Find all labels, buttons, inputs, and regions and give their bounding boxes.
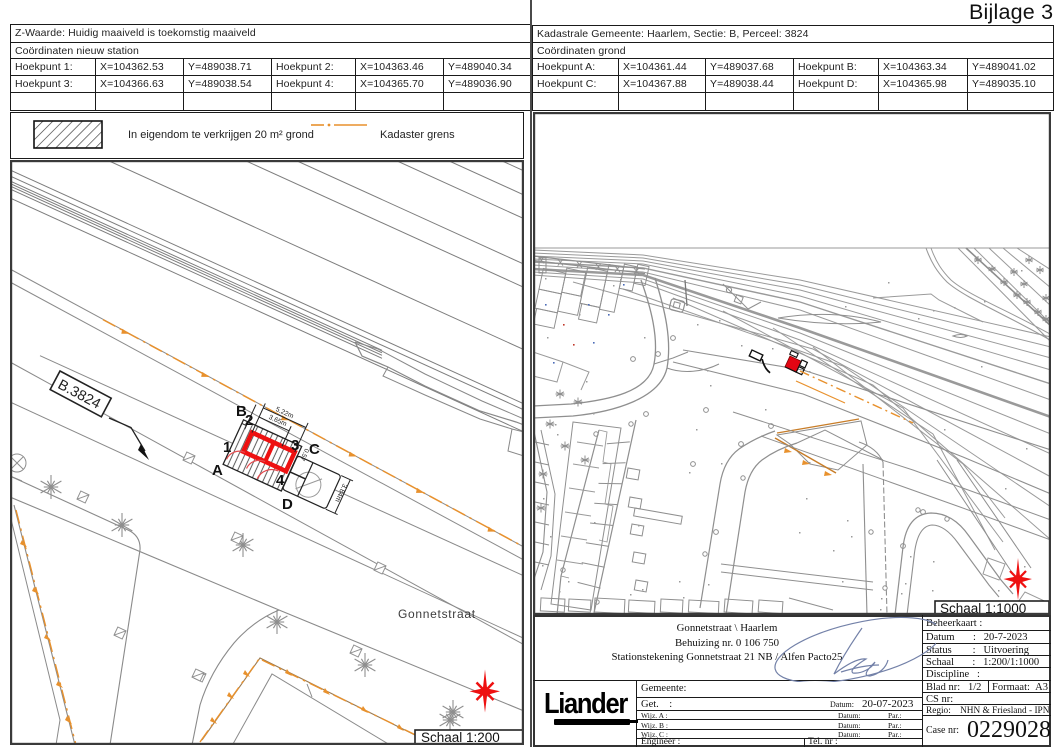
svg-text:1: 1: [223, 439, 231, 456]
svg-text:Gonnetstraat: Gonnetstraat: [398, 607, 476, 621]
svg-text:C: C: [309, 441, 320, 458]
svg-text:2: 2: [245, 412, 253, 429]
svg-text:A: A: [212, 462, 223, 479]
svg-text:3: 3: [291, 437, 299, 454]
svg-text:D: D: [282, 496, 293, 513]
svg-text:Kadaster grens: Kadaster grens: [380, 129, 455, 141]
svg-text:Schaal 1:200: Schaal 1:200: [421, 730, 500, 745]
svg-text:In eigendom te verkrijgen 20 m: In eigendom te verkrijgen 20 m² grond: [128, 129, 314, 141]
svg-text:4: 4: [276, 472, 285, 489]
